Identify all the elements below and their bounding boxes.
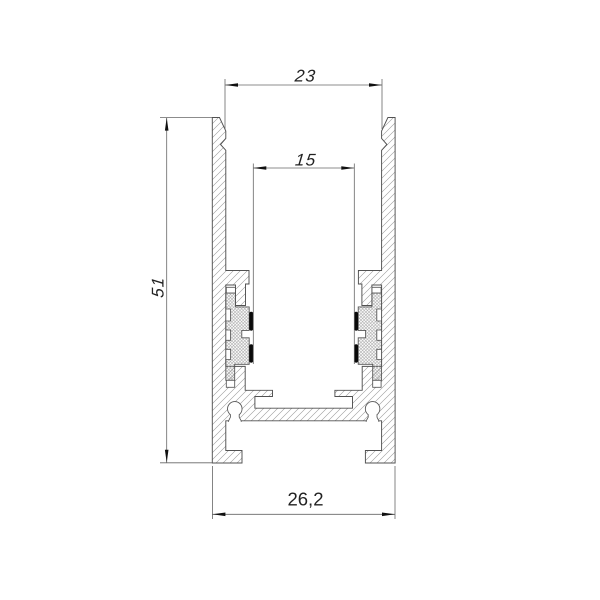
svg-text:26,2: 26,2: [287, 488, 323, 509]
svg-text:15: 15: [294, 151, 317, 170]
svg-text:23: 23: [293, 66, 317, 85]
svg-text:51: 51: [149, 275, 168, 298]
